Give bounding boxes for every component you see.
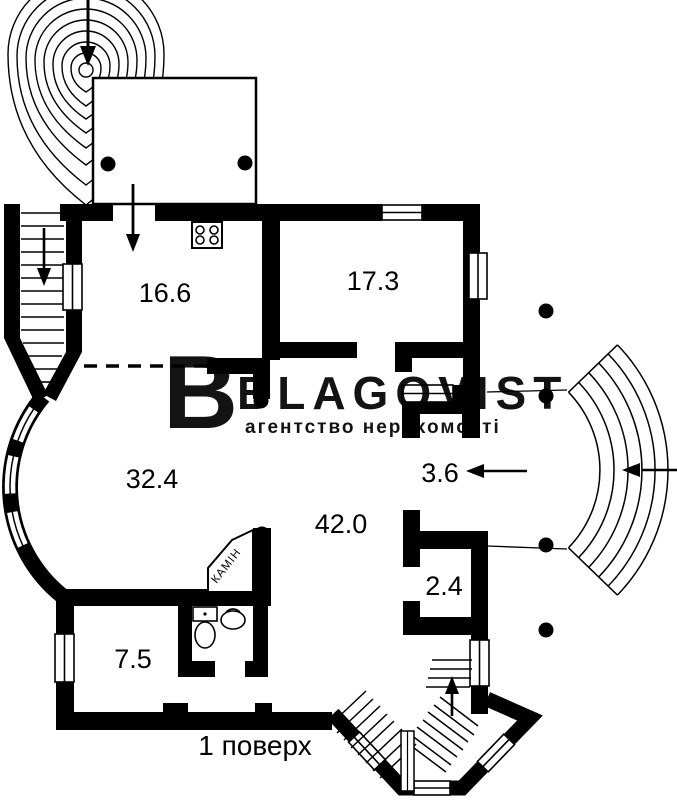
room-label-7-5: 7.5	[114, 644, 152, 674]
window-7-5-left	[55, 634, 74, 682]
stove-icon	[192, 222, 222, 248]
room-label-living-room: 32.4	[126, 464, 179, 494]
watermark: B BLAGOVIST агентство нерухомості	[163, 335, 568, 451]
watermark-brand: BLAGOVIST	[237, 367, 568, 419]
window-17-3-top	[382, 205, 422, 220]
window-below-2-4	[470, 640, 489, 686]
window-bay-bottom	[414, 781, 450, 795]
sink-icon	[221, 609, 245, 629]
watermark-logo-icon: B	[163, 335, 238, 451]
toilet-icon	[193, 607, 217, 648]
floor-plan: КАМІН 16.6 17.3 32.4 42.0 3.6 2.4 7.5 1 …	[0, 0, 677, 800]
window-bay-se	[477, 734, 514, 772]
room-label-closet: 2.4	[425, 571, 463, 601]
floor-label: 1 поверх	[198, 730, 311, 761]
room-label-17-3: 17.3	[347, 266, 400, 296]
watermark-tagline: агентство нерухомості	[245, 417, 501, 438]
top-porch	[93, 78, 256, 204]
porch-column-icon	[101, 157, 116, 172]
entry-corridor-arrow	[466, 464, 527, 478]
porch-column-icon	[539, 304, 554, 319]
porch-column-icon	[539, 623, 554, 638]
room-label-hall: 42.0	[315, 509, 368, 539]
window-stair	[63, 264, 82, 310]
curved-bay-windows	[4, 405, 39, 548]
room-label-entry: 3.6	[421, 458, 459, 488]
floor-plan-drawing: КАМІН 16.6 17.3 32.4 42.0 3.6 2.4 7.5 1 …	[0, 0, 677, 800]
porch-column-icon	[539, 538, 554, 553]
entrance-direction-arrow	[622, 463, 677, 477]
wall-column-icon	[255, 527, 270, 542]
bay-stair-landing-divider	[401, 731, 414, 791]
windows	[55, 205, 515, 795]
porch-column-icon	[238, 156, 253, 171]
room-label-kitchen: 16.6	[139, 278, 192, 308]
window-17-3-right	[469, 253, 487, 299]
